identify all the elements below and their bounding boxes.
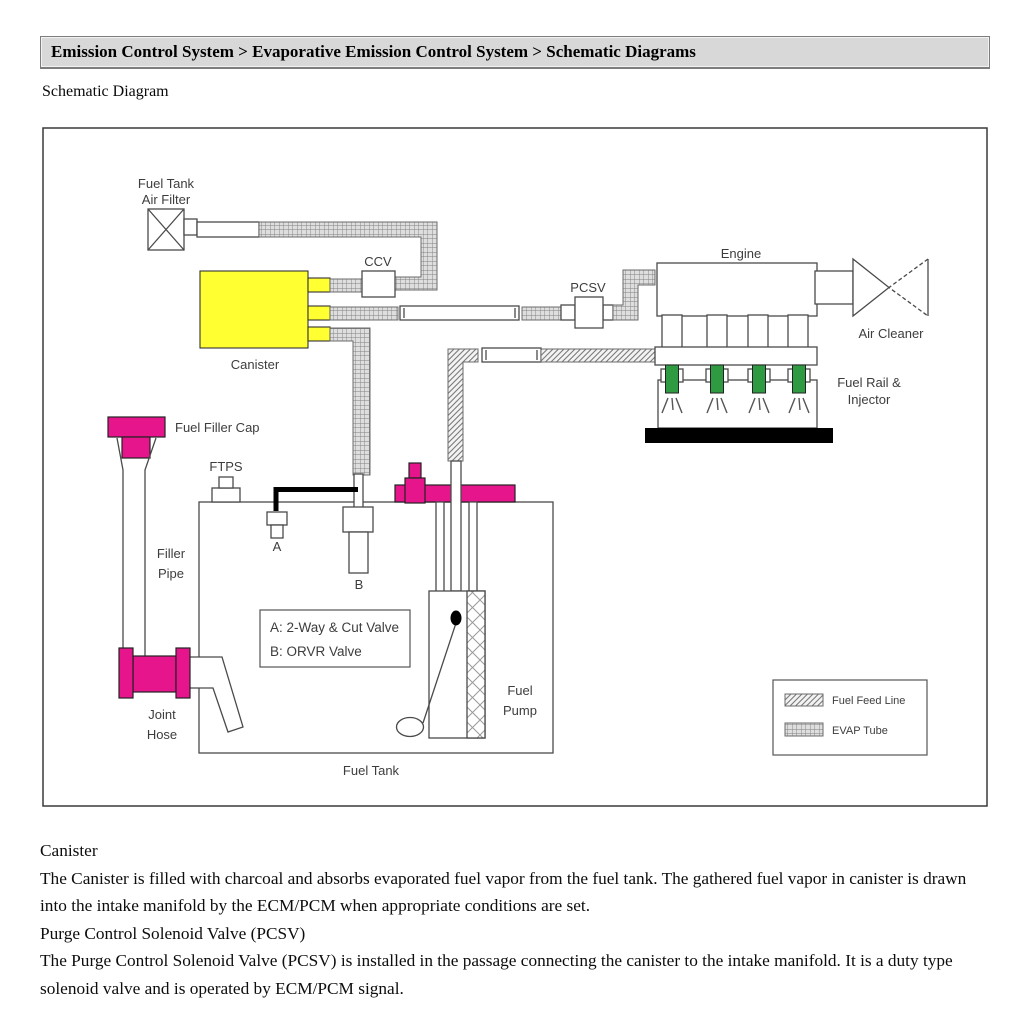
label-ccv: CCV	[364, 254, 392, 269]
section-paragraph: The Canister is filled with charcoal and…	[40, 865, 992, 920]
evap-swatch	[785, 723, 823, 736]
label-valve-a: A	[273, 539, 282, 554]
label-joint-hose-2: Hose	[147, 727, 177, 742]
canister-port-top	[308, 278, 330, 292]
injector-4	[793, 365, 806, 393]
engine-base-bar	[645, 428, 833, 443]
label-fuel-tank: Fuel Tank	[343, 763, 400, 778]
body-text: Canister The Canister is filled with cha…	[40, 837, 992, 1002]
canister-port-bottom	[308, 327, 330, 341]
label-fuel-pump-2: Pump	[503, 703, 537, 718]
label-filler-pipe-1: Filler	[157, 546, 186, 561]
section-heading: Purge Control Solenoid Valve (PCSV)	[40, 920, 992, 948]
valve-key-line1: A: 2-Way & Cut Valve	[270, 620, 399, 635]
section-heading: Canister	[40, 837, 992, 865]
valve-key: A: 2-Way & Cut Valve B: ORVR Valve	[260, 610, 410, 667]
label-filler-pipe-2: Pipe	[158, 566, 184, 581]
valve-key-line2: B: ORVR Valve	[270, 644, 362, 659]
canister	[200, 271, 330, 348]
injector-3	[753, 365, 766, 393]
section-paragraph: The Purge Control Solenoid Valve (PCSV) …	[40, 947, 992, 1002]
label-fuel-pump-1: Fuel	[507, 683, 532, 698]
injector-2	[711, 365, 724, 393]
label-ftps: FTPS	[209, 459, 243, 474]
legend-fuel-feed-label: Fuel Feed Line	[832, 695, 905, 707]
label-air-filter-2: Air Filter	[142, 192, 191, 207]
label-fuel-filler-cap: Fuel Filler Cap	[175, 420, 260, 435]
label-fuel-rail-1: Fuel Rail &	[837, 375, 901, 390]
manual-page: Emission Control System > Evaporative Em…	[0, 0, 1024, 1024]
float-pivot	[451, 611, 462, 626]
canister-port-mid	[308, 306, 330, 320]
engine	[657, 263, 817, 316]
label-valve-b: B	[355, 577, 364, 592]
label-canister: Canister	[231, 357, 280, 372]
line-legend: Fuel Feed Line EVAP Tube	[773, 680, 927, 755]
label-fuel-rail-2: Injector	[848, 392, 891, 407]
float	[397, 718, 424, 737]
label-joint-hose-1: Joint	[148, 707, 176, 722]
label-engine: Engine	[721, 246, 761, 261]
label-air-filter-1: Fuel Tank	[138, 176, 195, 191]
injector-1	[666, 365, 679, 393]
fuel-rail	[655, 347, 817, 365]
fuel-feed-swatch	[785, 694, 823, 706]
label-pcsv: PCSV	[570, 280, 606, 295]
label-air-cleaner: Air Cleaner	[858, 326, 924, 341]
legend-evap-label: EVAP Tube	[832, 725, 888, 737]
evap-line-canister-pcsv	[330, 306, 561, 320]
